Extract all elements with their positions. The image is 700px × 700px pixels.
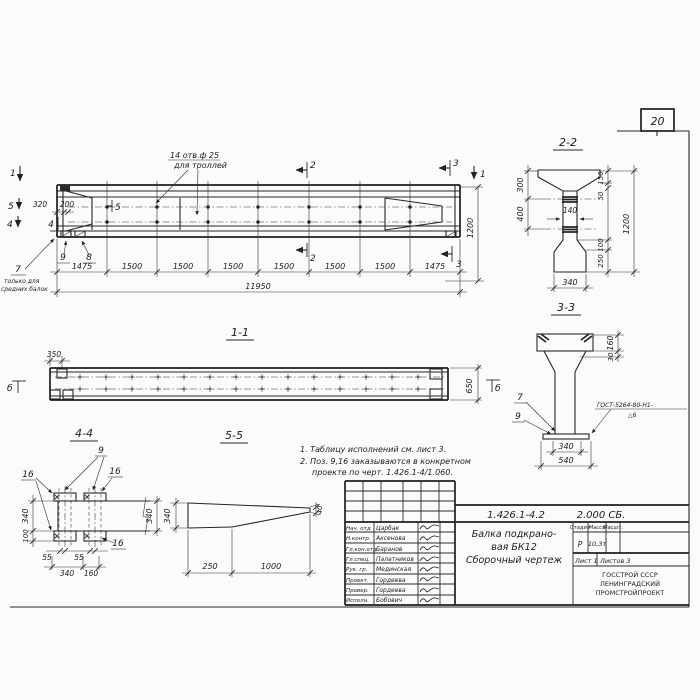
- trolley-holes: [105, 205, 411, 223]
- dim-label: 1475: [425, 262, 445, 271]
- view-title: 1-1: [231, 326, 249, 339]
- notes: 1. Таблицу исполнений см. лист 3. 2. Поз…: [300, 445, 471, 477]
- dim-label: 1500: [274, 262, 294, 271]
- name: Мединская: [376, 566, 411, 573]
- hole-note: 14 отв.ф 25: [170, 151, 219, 160]
- role: Проект.: [346, 578, 369, 584]
- role: Гл.спец.: [346, 557, 370, 563]
- name: Гордеева: [376, 577, 406, 584]
- section-mark: 2: [310, 254, 316, 264]
- weld-note: ГОСТ-5264-80-Н1-: [597, 402, 653, 409]
- rib-marks: [77, 374, 421, 392]
- dim-label: 300: [516, 177, 525, 192]
- dim-label: 320: [33, 200, 48, 209]
- role: Н.контр.: [346, 536, 371, 542]
- section-mark: б: [495, 384, 501, 394]
- note-line: проекте по черт. 1.426.1-4/1.060.: [312, 468, 453, 477]
- pos-label: 9: [98, 446, 104, 456]
- section-mark: 1: [10, 169, 16, 179]
- dim-label: 50: [597, 191, 605, 200]
- plan-view: [57, 181, 460, 277]
- column-header: Стадия: [570, 525, 590, 531]
- dim-label: 1500: [173, 262, 193, 271]
- dim-label: 340: [562, 278, 577, 287]
- note-line: 1. Таблицу исполнений см. лист 3.: [300, 445, 446, 454]
- dim-label: 340: [163, 508, 172, 523]
- dim-label: 340: [60, 569, 75, 578]
- view-1-1: 1-1 350 650 б б: [7, 326, 501, 404]
- dim-label: 160: [606, 335, 615, 350]
- pos-label: 9: [515, 412, 521, 422]
- section-title: 3-3: [557, 301, 575, 314]
- pos-label: 16: [22, 470, 34, 480]
- name: Палатников: [376, 556, 414, 563]
- role: Исполн.: [346, 598, 369, 604]
- dim-label: 100: [597, 238, 605, 252]
- detail-title: 5-5: [225, 429, 243, 442]
- signature-rows: Нач. отд Царбак Н.контр. Аксенова Гл.кон…: [346, 525, 439, 604]
- dim-label: 340: [21, 508, 30, 523]
- role: Рук. гр.: [346, 567, 368, 573]
- org-name: ГОССТРОЙ СССР: [602, 570, 658, 579]
- end-pad: [60, 186, 70, 191]
- pos-label: 9: [60, 253, 66, 263]
- section-mark: 5: [115, 203, 121, 213]
- pos-label: 8: [86, 253, 92, 263]
- dim-label: 1500: [122, 262, 142, 271]
- plan-grid-lines: [107, 181, 410, 277]
- dim-label: 100: [22, 529, 30, 543]
- role: Нач. отд: [346, 526, 371, 532]
- section-mark: 1: [480, 170, 486, 180]
- dim-label: 400: [516, 206, 525, 221]
- column-header: Масшт.: [603, 525, 623, 531]
- note-line: 2. Поз. 9,16 заказываются в конкретном: [300, 457, 471, 466]
- dim-total: 11950: [245, 282, 270, 291]
- drawing-title: Сборочный чертеж: [466, 555, 563, 566]
- name: Аксенова: [375, 535, 406, 542]
- dim-label: 1500: [223, 262, 243, 271]
- note: только для: [4, 278, 40, 285]
- section-mark: 3: [453, 159, 459, 169]
- mass-value: 10,3т: [588, 540, 606, 548]
- dim-label: 200: [60, 200, 75, 209]
- dim-label: 350: [47, 350, 62, 359]
- page-number: 20: [651, 115, 665, 128]
- dim-label: 55: [42, 553, 52, 562]
- sheets-info: Листов 3: [599, 557, 630, 565]
- weld-note: △6: [628, 412, 637, 419]
- dim-label: 55: [74, 553, 84, 562]
- section-mark: 4: [48, 220, 54, 230]
- section-3-3: 3-3 160 30 7 9 ГОСТ-5264-80-Н1- △6 340: [512, 301, 687, 470]
- dim-label: 1000: [261, 562, 281, 571]
- name: Царбак: [376, 525, 400, 532]
- section-mark: 2: [310, 161, 316, 171]
- detail-4-4: 4-4 9 16 16 16 340 100: [21, 427, 162, 578]
- dim-label: 340: [558, 442, 573, 451]
- pos-label: 7: [15, 265, 21, 275]
- doc-number: 1.426.1-4.2: [487, 510, 545, 521]
- name: Баранов: [376, 546, 403, 553]
- stage-value: Р: [578, 540, 583, 549]
- drawing-sheet: 20 1475: [0, 0, 700, 700]
- note: средних балок: [1, 286, 48, 293]
- drawing-canvas: 20 1475: [0, 0, 700, 700]
- org-name: ЛЕНИНГРАДСКИЙ: [600, 579, 660, 588]
- role: Провер.: [346, 588, 369, 594]
- dim-label: 250: [202, 562, 217, 571]
- detail-title: 4-4: [75, 427, 93, 440]
- dim-label: 1200: [622, 214, 631, 234]
- dim-label: 1500: [375, 262, 395, 271]
- pos-label: 16: [112, 539, 124, 549]
- role: Гл.кон.отд: [346, 547, 377, 553]
- dim-label: 340: [145, 508, 154, 523]
- section-title: 2-2: [559, 136, 577, 149]
- drawing-title: вая БК12: [491, 542, 537, 553]
- sheet-info: Лист 1: [574, 557, 598, 565]
- title-block: 1.426.1-4.2 2.000 СБ. Балка подкрано- ва…: [345, 481, 689, 605]
- dim-label: 140: [563, 206, 578, 215]
- section-mark: 5: [8, 202, 14, 212]
- pos-label: 7: [517, 393, 523, 403]
- section-mark: 4: [7, 220, 13, 230]
- name: Бобович: [376, 597, 403, 604]
- dim-label: 150: [597, 171, 605, 185]
- dim-label: 1200: [466, 218, 475, 238]
- dim-label: 1500: [325, 262, 345, 271]
- plan-dimensions: 1475 1500 1500 1500 1500 1500 1500 1475 …: [33, 187, 484, 297]
- dim-label: 1475: [72, 262, 92, 271]
- section-2-2: 2-2 140 300 400 150 50 100 250 1200: [516, 136, 640, 292]
- dim-label: 160: [84, 569, 99, 578]
- name: Гордеева: [376, 587, 406, 594]
- dim-label: 30: [607, 352, 615, 361]
- section-mark: б: [7, 384, 13, 394]
- hole-note: для троллей: [173, 161, 227, 170]
- doc-code: 2.000 СБ.: [577, 510, 626, 521]
- dim-label: 250: [597, 254, 605, 268]
- drawing-title: Балка подкрано-: [472, 529, 557, 540]
- org-name: ПРОМСТРОЙПРОЕКТ: [596, 588, 665, 597]
- signatures: [420, 525, 439, 602]
- dim-label: 650: [465, 378, 474, 393]
- section-mark: 3: [456, 260, 462, 270]
- pos-label: 16: [109, 467, 121, 477]
- dim-label: 540: [558, 456, 573, 465]
